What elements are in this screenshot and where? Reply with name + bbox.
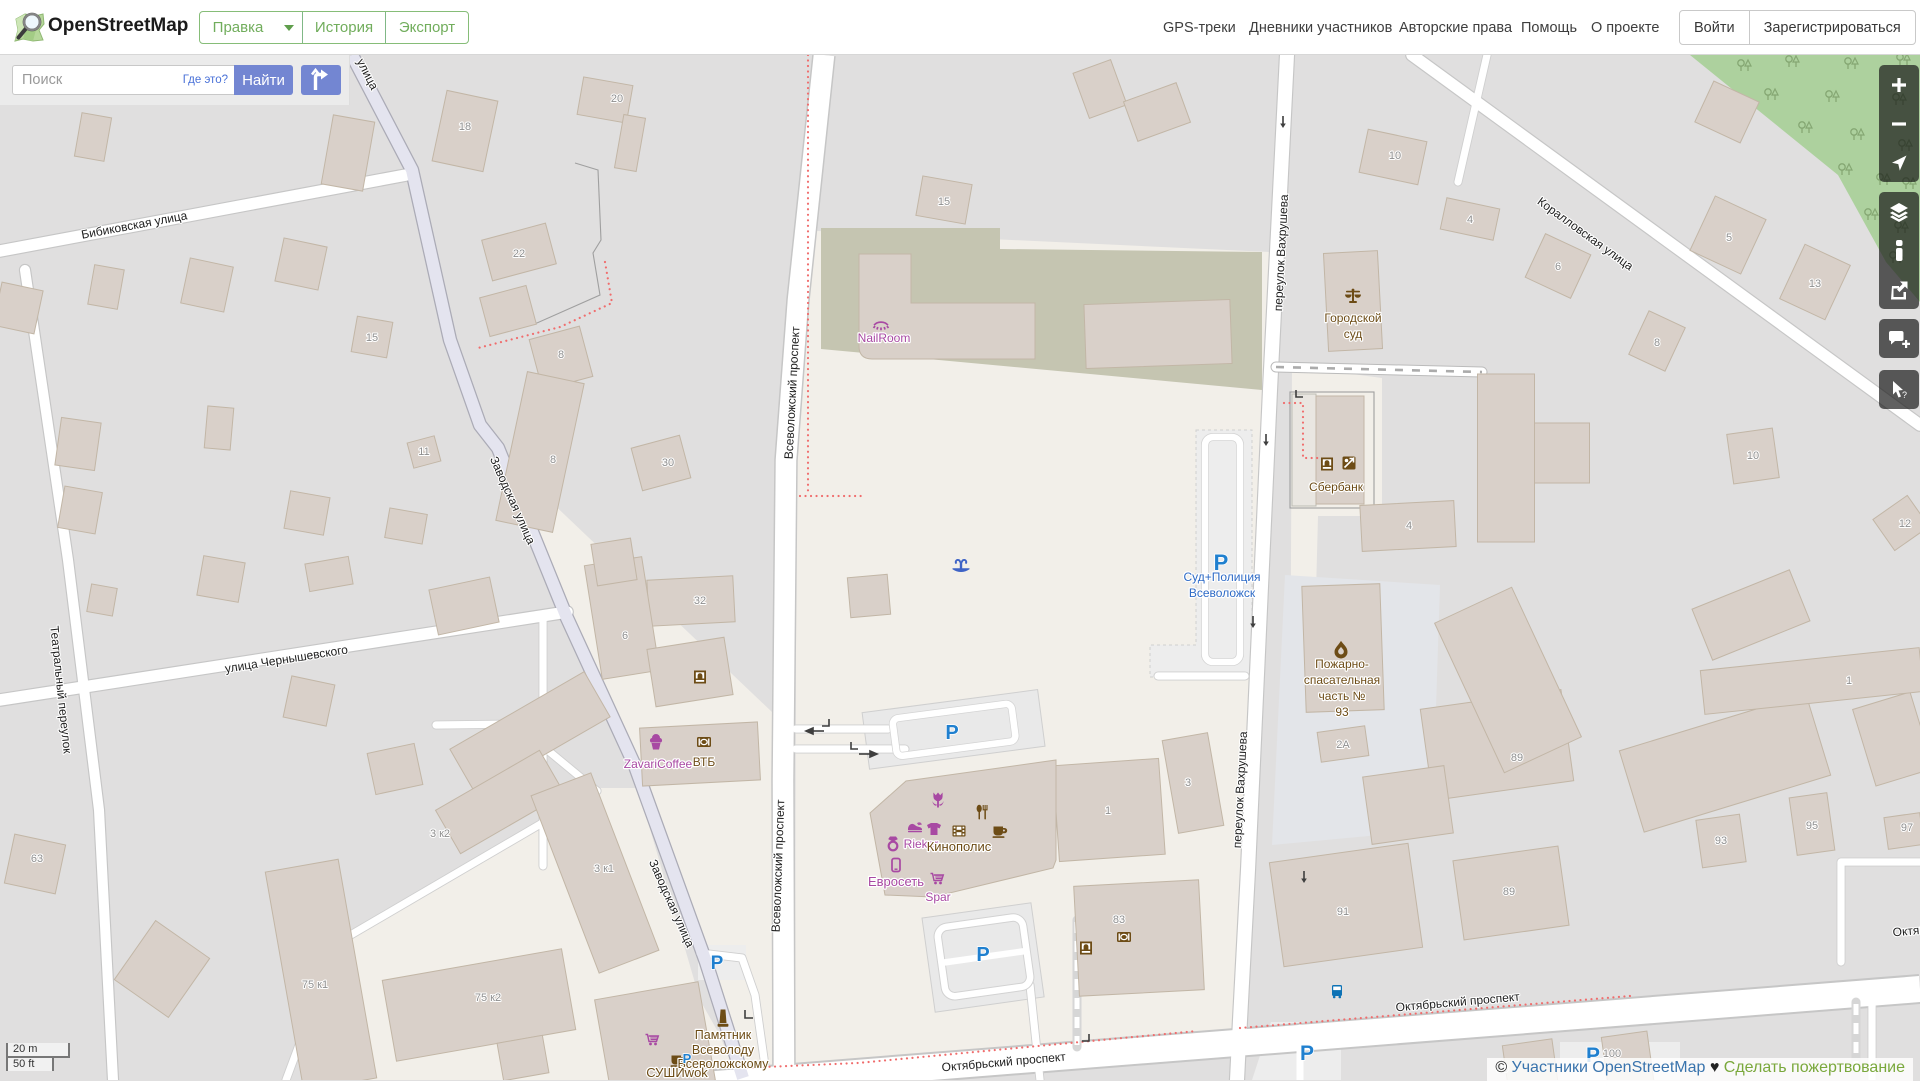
svg-text:P: P xyxy=(1214,550,1229,575)
svg-text:8: 8 xyxy=(558,349,564,361)
svg-text:93: 93 xyxy=(1715,835,1727,847)
svg-text:6: 6 xyxy=(622,630,628,642)
svg-text:91: 91 xyxy=(1337,906,1349,918)
svg-text:10: 10 xyxy=(1389,150,1401,162)
svg-text:Всеволожск: Всеволожск xyxy=(1189,586,1256,600)
svg-text:15: 15 xyxy=(366,332,378,344)
svg-text:93: 93 xyxy=(1335,705,1349,719)
svg-text:4: 4 xyxy=(1467,214,1473,226)
svg-text:3 к1: 3 к1 xyxy=(594,863,614,875)
svg-text:18: 18 xyxy=(459,121,471,133)
svg-text:2А: 2А xyxy=(1336,739,1350,751)
svg-text:95: 95 xyxy=(1806,820,1818,832)
svg-text:5: 5 xyxy=(1726,232,1732,244)
svg-text:P: P xyxy=(976,944,989,966)
svg-text:3 к2: 3 к2 xyxy=(430,828,450,840)
svg-text:30: 30 xyxy=(662,457,674,469)
svg-text:Памятник: Памятник xyxy=(695,1028,752,1042)
svg-text:Пожарно-: Пожарно- xyxy=(1315,657,1369,671)
svg-text:83: 83 xyxy=(1113,914,1125,926)
svg-text:спасательная: спасательная xyxy=(1304,673,1380,687)
svg-text:Spar: Spar xyxy=(925,890,950,904)
svg-text:75 к2: 75 к2 xyxy=(475,992,501,1004)
svg-text:1: 1 xyxy=(1105,805,1111,817)
svg-text:63: 63 xyxy=(31,853,43,865)
svg-text:89: 89 xyxy=(1511,752,1523,764)
svg-text:10: 10 xyxy=(1747,450,1759,462)
svg-text:Сбербанк: Сбербанк xyxy=(1309,480,1364,494)
svg-text:22: 22 xyxy=(513,248,525,260)
svg-text:?: ? xyxy=(1902,390,1907,400)
svg-text:8: 8 xyxy=(1654,337,1660,349)
svg-text:11: 11 xyxy=(418,446,429,458)
svg-text:ВТБ: ВТБ xyxy=(693,755,716,769)
svg-text:часть №: часть № xyxy=(1319,689,1366,703)
svg-text:97: 97 xyxy=(1901,822,1913,834)
svg-text:20: 20 xyxy=(611,93,623,105)
svg-text:Евросеть: Евросеть xyxy=(868,874,924,889)
svg-text:NailRoom: NailRoom xyxy=(858,331,911,345)
svg-text:P: P xyxy=(1300,1042,1314,1065)
svg-text:15: 15 xyxy=(938,196,950,208)
svg-text:6: 6 xyxy=(1555,261,1561,273)
svg-text:СУШИwok: СУШИwok xyxy=(646,1065,708,1080)
svg-text:P: P xyxy=(711,953,724,974)
svg-text:ZavariCoffee: ZavariCoffee xyxy=(624,757,693,771)
svg-text:Всеволоду: Всеволоду xyxy=(692,1043,755,1057)
svg-text:4: 4 xyxy=(1406,520,1412,532)
svg-text:Городской: Городской xyxy=(1324,311,1381,325)
svg-text:13: 13 xyxy=(1809,278,1821,290)
svg-text:1: 1 xyxy=(1846,675,1852,687)
svg-text:12: 12 xyxy=(1899,518,1911,530)
svg-text:32: 32 xyxy=(694,595,706,607)
svg-text:P: P xyxy=(683,1051,692,1066)
svg-text:75 к1: 75 к1 xyxy=(302,979,328,991)
svg-text:8: 8 xyxy=(550,454,556,466)
svg-text:суд: суд xyxy=(1344,327,1363,341)
svg-text:3: 3 xyxy=(1185,777,1191,789)
svg-text:89: 89 xyxy=(1503,886,1515,898)
svg-text:Кинополис: Кинополис xyxy=(927,839,992,854)
svg-text:P: P xyxy=(945,722,958,744)
